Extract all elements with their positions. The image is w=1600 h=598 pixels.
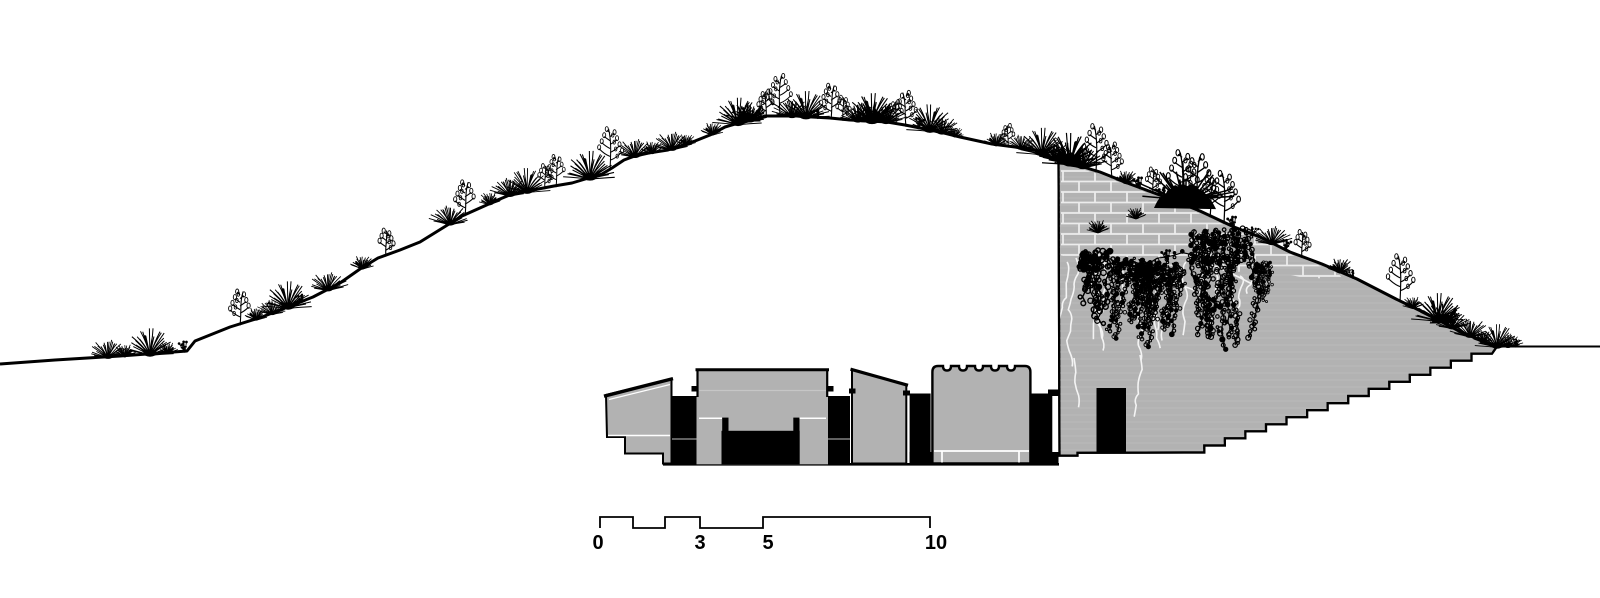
svg-text:5: 5 [762, 532, 773, 554]
svg-text:10: 10 [925, 532, 947, 554]
svg-text:0: 0 [592, 532, 603, 554]
svg-text:3: 3 [694, 532, 705, 554]
